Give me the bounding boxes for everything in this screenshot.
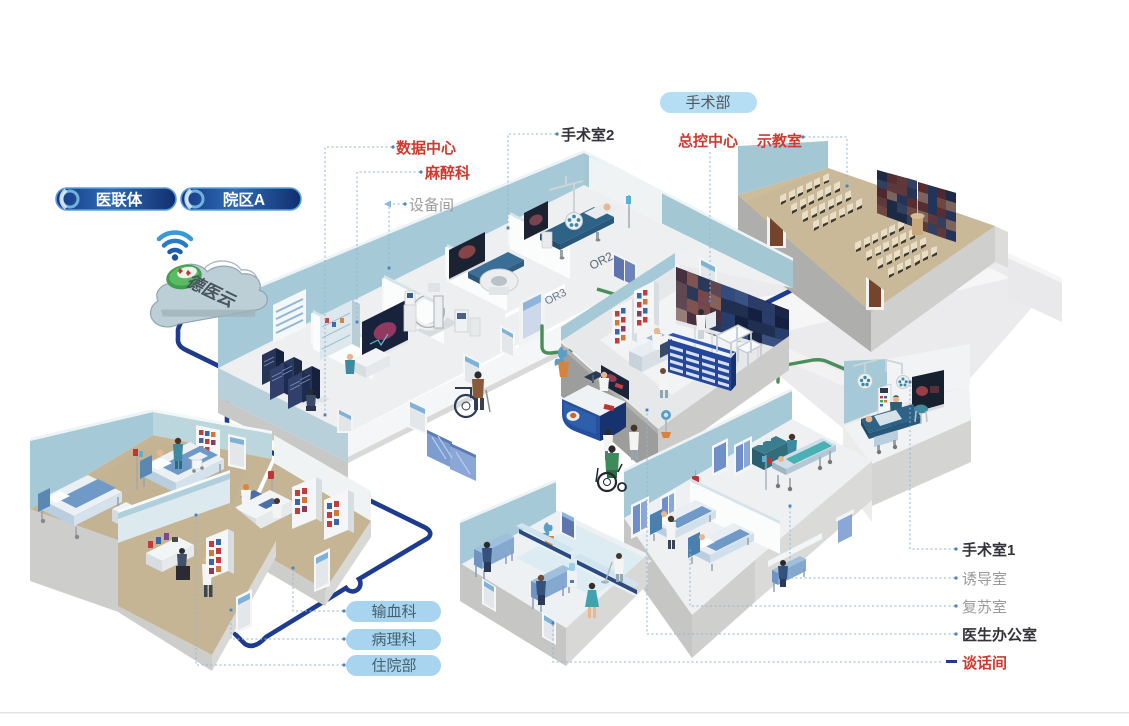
svg-text:麻醉科: 麻醉科 (424, 164, 470, 182)
svg-text:住院部: 住院部 (371, 657, 416, 675)
svg-text:手术部: 手术部 (685, 95, 730, 112)
svg-text:复苏室: 复苏室 (962, 598, 1007, 616)
svg-text:院区A: 院区A (223, 190, 265, 209)
svg-text:病理科: 病理科 (371, 632, 416, 649)
svg-text:医生办公室: 医生办公室 (962, 626, 1037, 644)
svg-text:诱导室: 诱导室 (962, 571, 1007, 588)
svg-text:手术室2: 手术室2 (561, 126, 614, 144)
svg-text:示教室: 示教室 (757, 132, 802, 150)
svg-text:设备间: 设备间 (409, 197, 454, 214)
svg-text:数据中心: 数据中心 (396, 139, 456, 157)
svg-text:总控中心: 总控中心 (678, 132, 738, 150)
svg-text:医联体: 医联体 (96, 190, 143, 209)
svg-text:输血科: 输血科 (371, 604, 416, 621)
svg-text:手术室1: 手术室1 (962, 541, 1015, 559)
svg-text:谈话间: 谈话间 (962, 654, 1007, 672)
